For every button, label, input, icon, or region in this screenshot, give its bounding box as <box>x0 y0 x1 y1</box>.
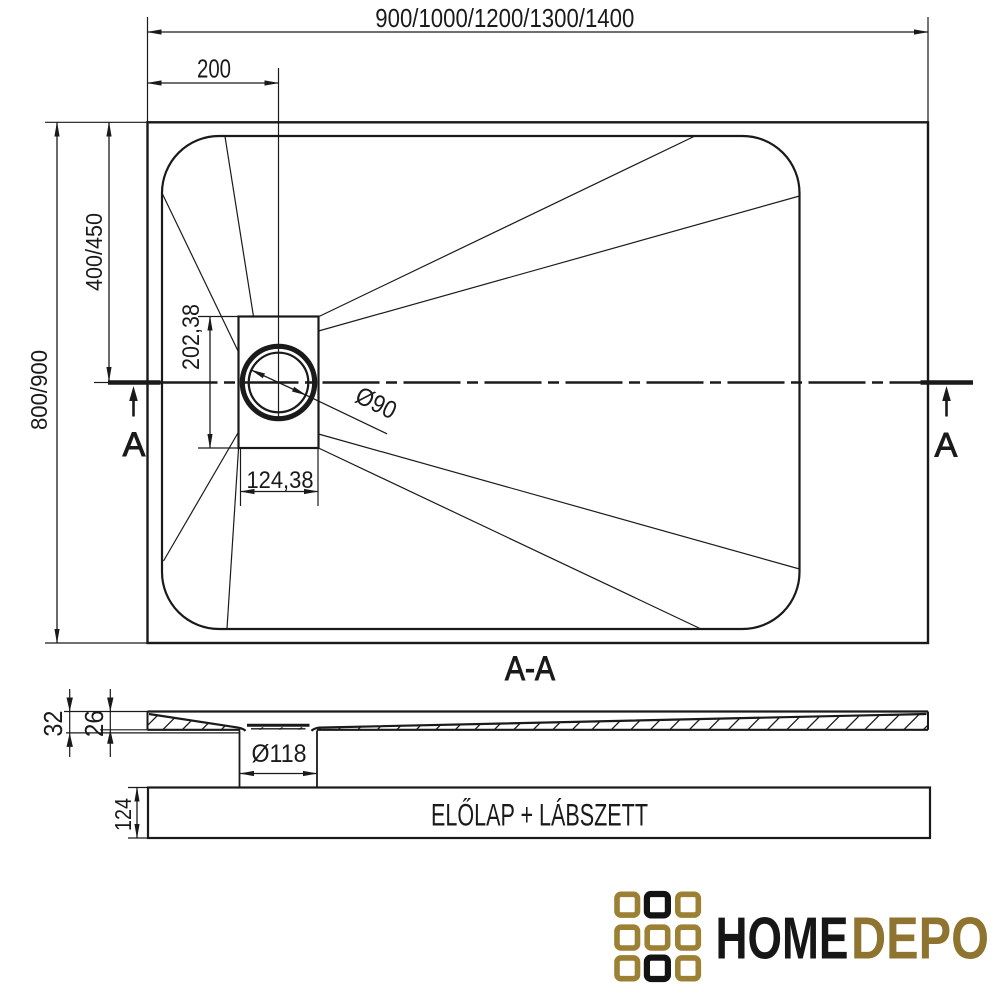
svg-text:400/450: 400/450 <box>81 213 107 291</box>
svg-text:800/900: 800/900 <box>26 350 52 430</box>
svg-text:124,38: 124,38 <box>247 467 314 494</box>
svg-text:32: 32 <box>38 711 68 737</box>
svg-text:200: 200 <box>197 54 231 84</box>
svg-text:A-A: A-A <box>505 650 555 688</box>
svg-text:124: 124 <box>110 798 136 831</box>
svg-text:DEPO: DEPO <box>851 906 989 972</box>
svg-text:HOME: HOME <box>716 906 849 972</box>
svg-text:900/1000/1200/1300/1400: 900/1000/1200/1300/1400 <box>375 3 634 33</box>
svg-text:Ø118: Ø118 <box>252 740 307 768</box>
svg-text:A: A <box>935 427 958 465</box>
svg-text:ELŐLAP + LÁBSZETT: ELŐLAP + LÁBSZETT <box>431 797 648 833</box>
svg-text:26: 26 <box>79 710 109 737</box>
svg-text:202,38: 202,38 <box>178 304 205 370</box>
svg-text:A: A <box>123 426 146 464</box>
